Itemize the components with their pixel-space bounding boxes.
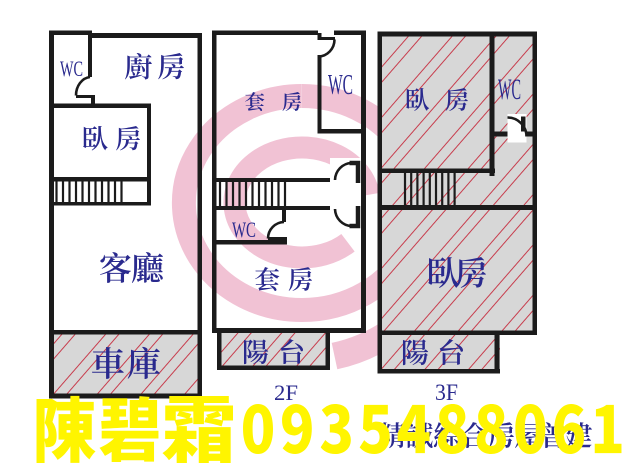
svg-text:WC: WC	[232, 217, 256, 242]
svg-text:3F: 3F	[435, 380, 458, 405]
svg-text:WC: WC	[60, 56, 83, 81]
svg-text:2F: 2F	[274, 380, 298, 405]
svg-text:WC: WC	[498, 73, 521, 106]
svg-text:WC: WC	[328, 70, 353, 101]
